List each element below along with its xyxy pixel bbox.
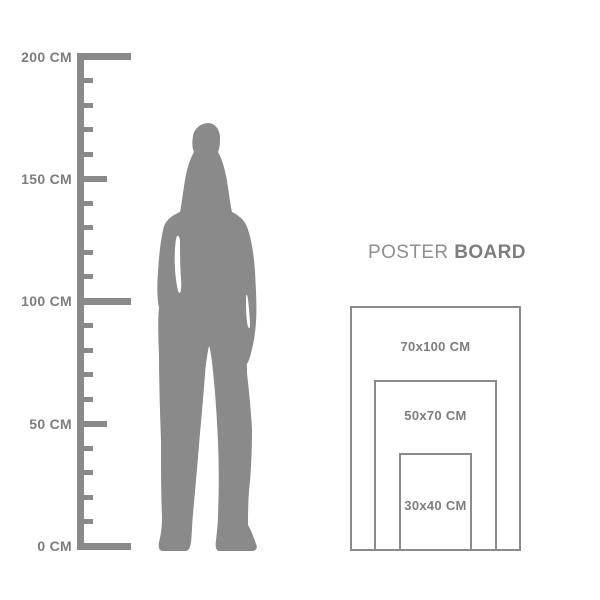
ruler-tick-180cm [77,103,93,108]
size-label: 30x40 CM [401,499,471,513]
ruler-tick-10cm [77,519,93,524]
ruler-label-200cm: 200 CM [10,50,72,64]
ruler-tick-60cm [77,397,93,402]
ruler-tick-50cm [77,421,107,427]
ruler-tick-0cm [77,543,131,550]
ruler-label-0cm: 0 CM [10,539,72,553]
ruler-tick-160cm [77,152,93,157]
poster-board-title-regular: POSTER [368,242,449,263]
size-rect-30x40: 30x40 CM [399,453,473,551]
ruler-tick-190cm [77,78,93,83]
size-comparison-diagram: 200 CM150 CM100 CM50 CM0 CM POSTER BOARD… [0,0,600,600]
size-label: 70x100 CM [352,340,520,354]
ruler-label-100cm: 100 CM [10,294,72,308]
ruler-tick-100cm [77,298,131,305]
ruler-tick-40cm [77,446,93,451]
ruler-label-150cm: 150 CM [10,172,72,186]
ruler-tick-110cm [77,274,93,279]
ruler-tick-170cm [77,127,93,132]
ruler-tick-150cm [77,176,107,182]
ruler-tick-70cm [77,372,93,377]
poster-board-title-bold: BOARD [454,242,526,263]
ruler-tick-130cm [77,225,93,230]
ruler-label-50cm: 50 CM [10,417,72,431]
ruler-tick-90cm [77,323,93,328]
ruler-tick-120cm [77,250,93,255]
woman-silhouette [155,121,262,551]
ruler-tick-80cm [77,348,93,353]
ruler-tick-20cm [77,495,93,500]
woman-silhouette-body [157,123,256,551]
poster-board-title: POSTER BOARD [368,243,526,263]
size-label: 50x70 CM [376,409,495,423]
ruler-tick-200cm [77,53,131,60]
ruler-tick-140cm [77,201,93,206]
ruler-tick-30cm [77,470,93,475]
